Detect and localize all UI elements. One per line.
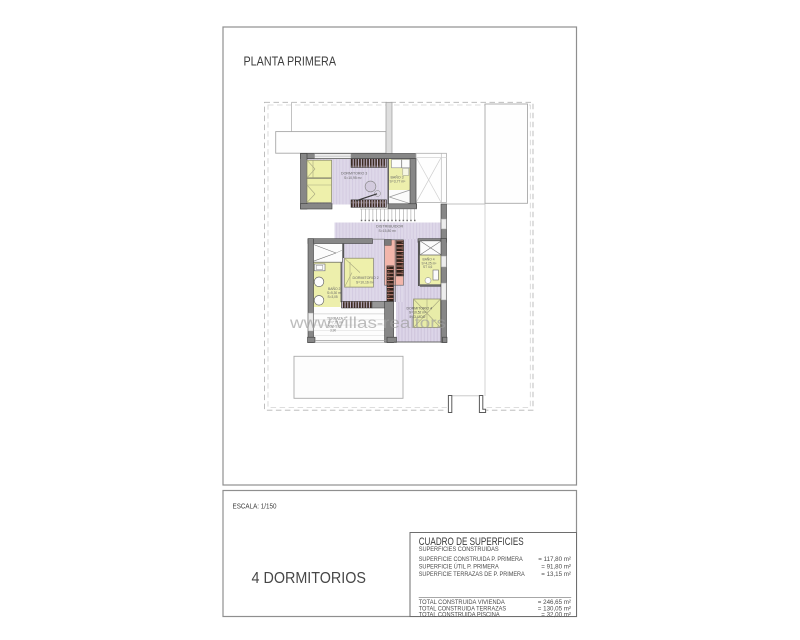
svg-text:www.villas-realtors: www.villas-realtors: [289, 315, 447, 332]
svg-text:DORMITORIO 2: DORMITORIO 2: [353, 276, 379, 280]
svg-text:DISTRIBUIDOR: DISTRIBUIDOR: [376, 225, 403, 229]
svg-text:SUPERFICIE CONSTRUIDA P. PRIME: SUPERFICIE CONSTRUIDA P. PRIMERA: [419, 556, 524, 563]
svg-text:ESCALA: 1/150: ESCALA: 1/150: [233, 502, 277, 511]
svg-text:SUPERFICIE ÚTIL P. PRIMERA: SUPERFICIE ÚTIL P. PRIMERA: [419, 564, 500, 571]
svg-text:= 13,15 m²: = 13,15 m²: [541, 571, 571, 578]
svg-text:DORMITORIO 3: DORMITORIO 3: [341, 172, 367, 176]
svg-text:ST 4,6: ST 4,6: [423, 265, 433, 269]
svg-text:S=3,77 m²: S=3,77 m²: [390, 180, 407, 184]
svg-text:= 117,80 m²: = 117,80 m²: [538, 556, 571, 563]
svg-text:S=10,95 m²: S=10,95 m²: [344, 176, 362, 180]
svg-text:PLANTA PRIMERA: PLANTA PRIMERA: [244, 55, 337, 69]
svg-text:= 91,80 m²: = 91,80 m²: [541, 564, 571, 571]
svg-text:S=3,05: S=3,05: [328, 295, 338, 299]
svg-text:S=15,80 m²: S=15,80 m²: [379, 229, 397, 233]
svg-text:4 DORMITORIOS: 4 DORMITORIOS: [252, 570, 367, 587]
svg-text:S=10,16 m²: S=10,16 m²: [356, 281, 374, 285]
svg-text:TOTAL CONSTRUIDA PISCINA: TOTAL CONSTRUIDA PISCINA: [419, 611, 501, 618]
svg-text:SUPERFICIES CONSTRUIDAS: SUPERFICIES CONSTRUIDAS: [419, 546, 499, 553]
svg-text:SUPERFICIE TERRAZAS DE P. PRIM: SUPERFICIE TERRAZAS DE P. PRIMERA: [419, 571, 526, 578]
svg-text:= 32,00 m²: = 32,00 m²: [541, 611, 571, 618]
